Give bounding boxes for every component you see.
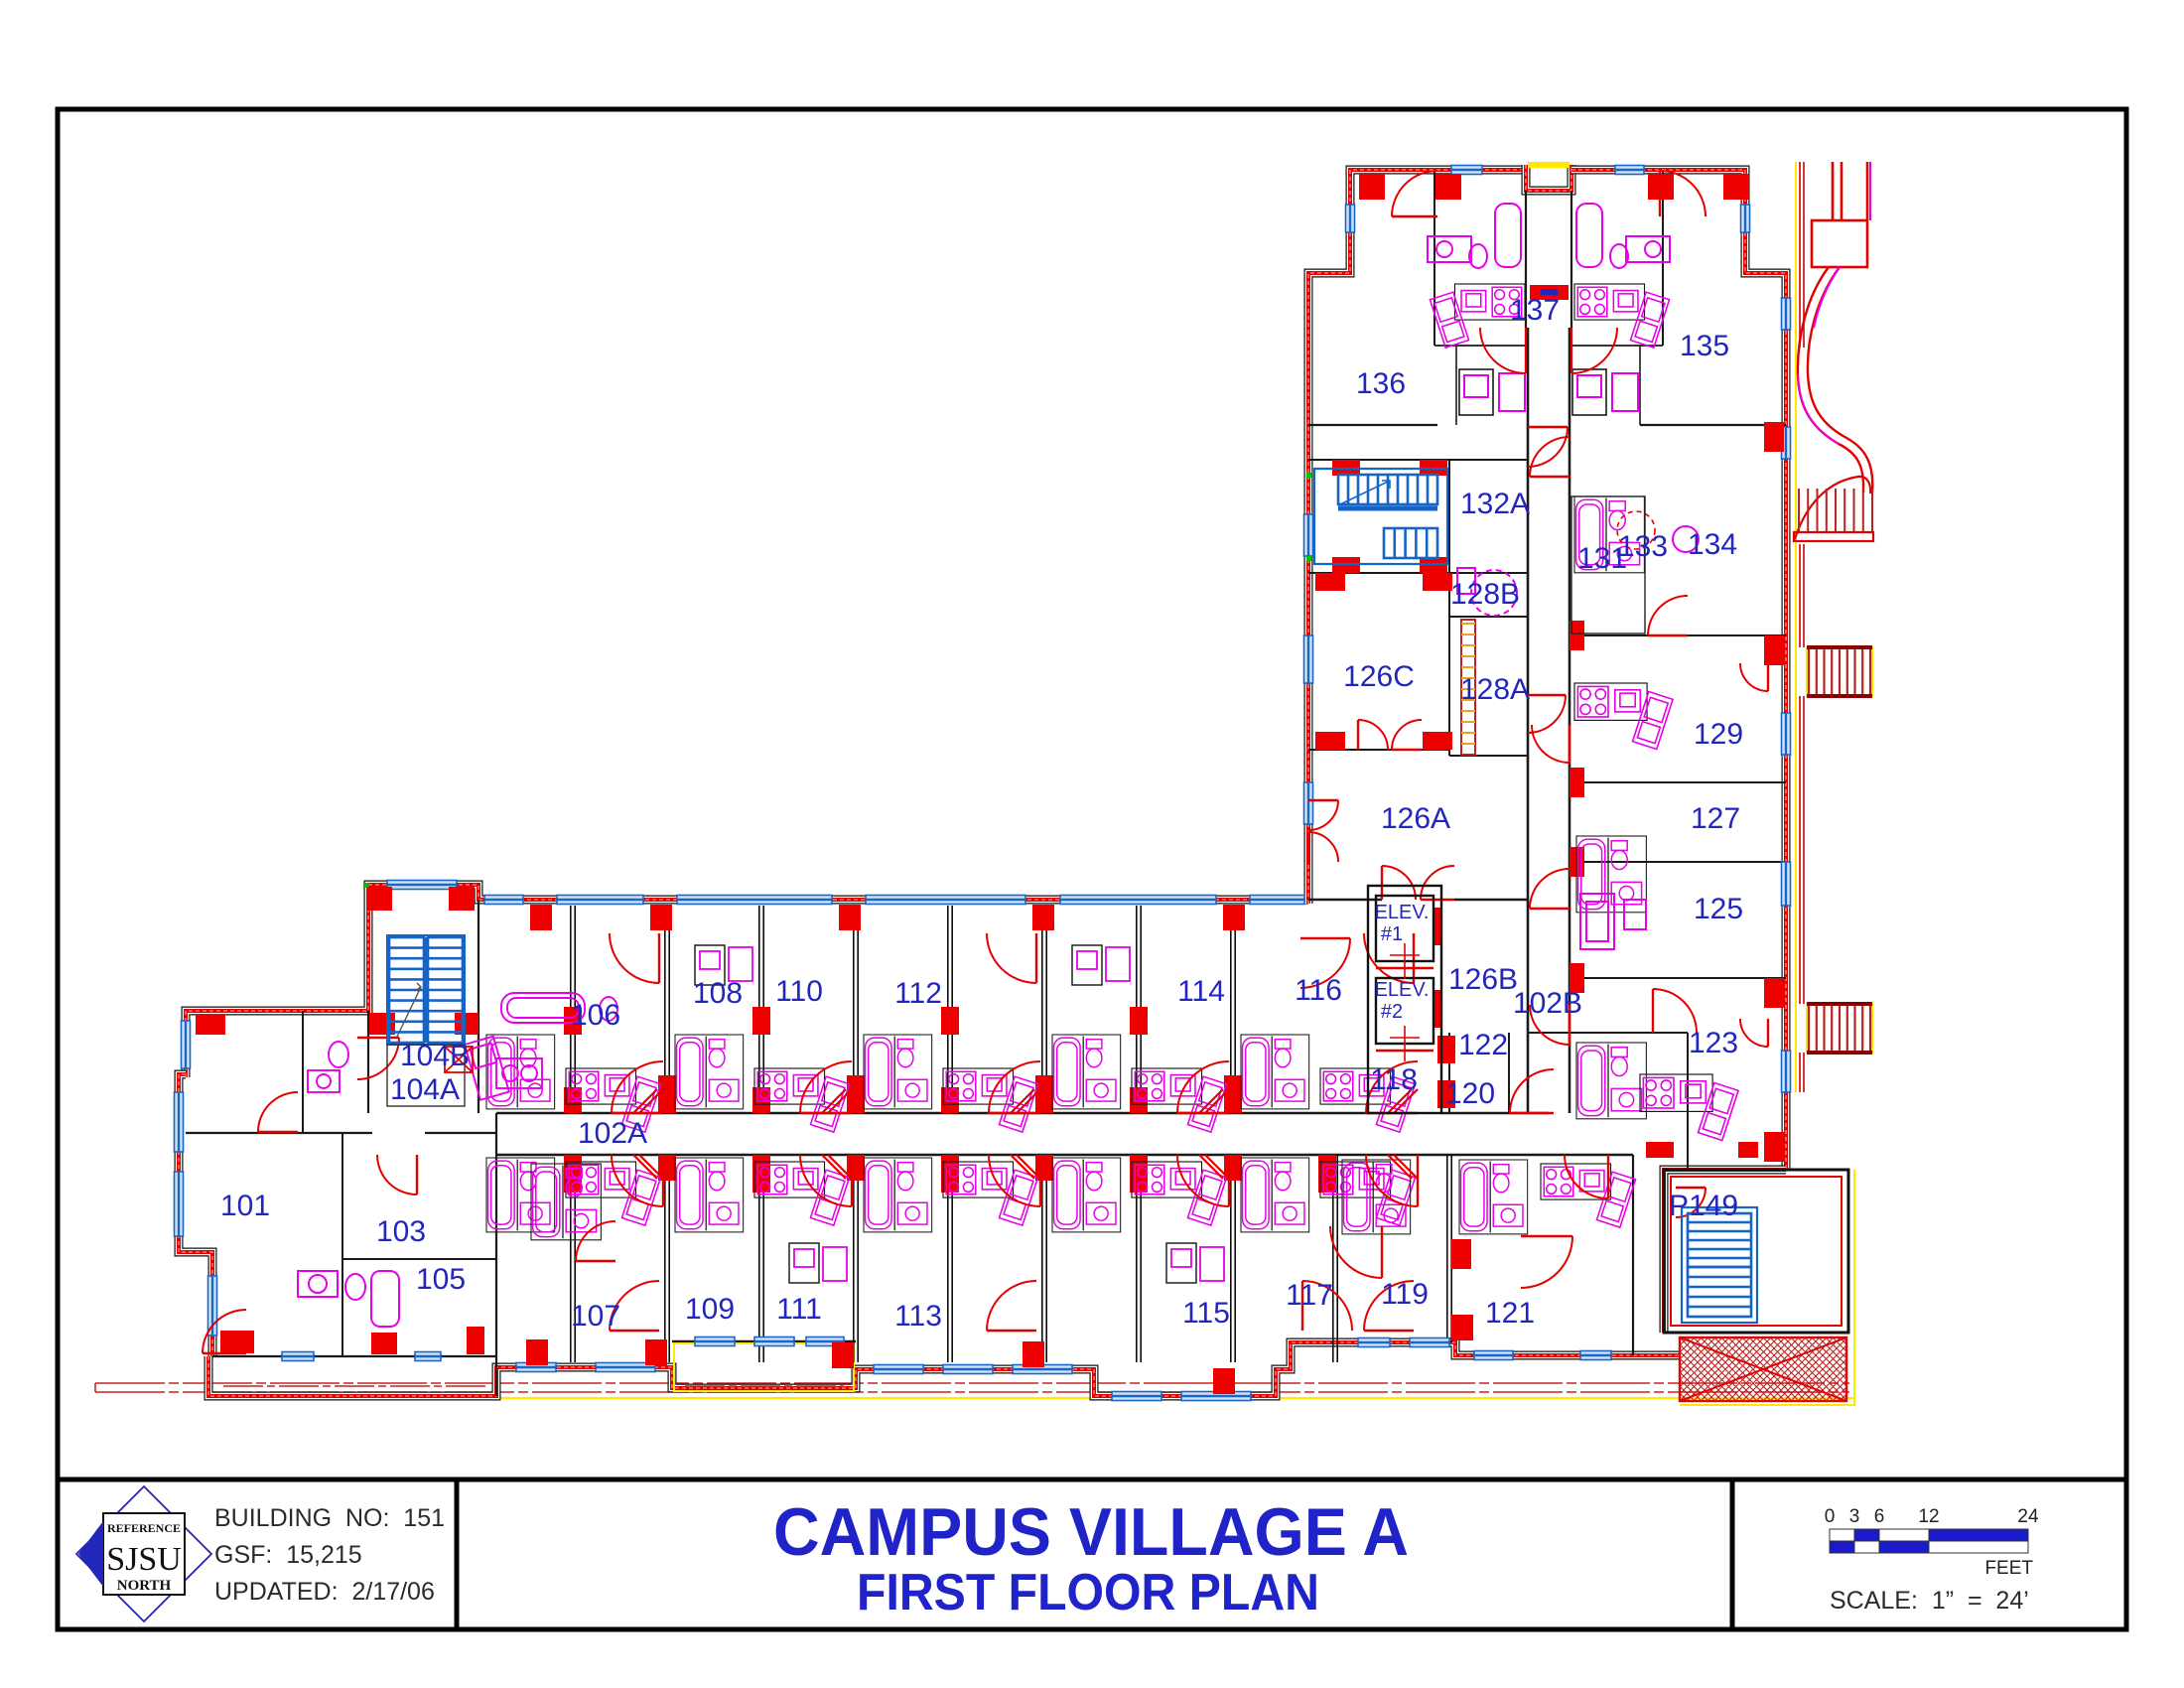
svg-text:24: 24	[2017, 1506, 2039, 1527]
svg-text:#1: #1	[1381, 923, 1403, 945]
svg-text:115: 115	[1182, 1297, 1230, 1330]
svg-text:ELEV.: ELEV.	[1375, 979, 1430, 1001]
svg-text:ELEV.: ELEV.	[1375, 902, 1430, 923]
svg-text:CAMPUS VILLAGE A: CAMPUS VILLAGE A	[773, 1494, 1409, 1570]
svg-text:137: 137	[1510, 294, 1560, 327]
svg-text:126C: 126C	[1343, 660, 1415, 693]
svg-text:109: 109	[685, 1293, 735, 1326]
svg-text:108: 108	[693, 977, 743, 1010]
svg-text:123: 123	[1689, 1027, 1738, 1059]
svg-text:106: 106	[571, 999, 620, 1032]
svg-text:126A: 126A	[1381, 802, 1450, 835]
svg-text:GSF: 15,215: GSF: 15,215	[214, 1541, 362, 1569]
svg-text:122: 122	[1458, 1029, 1508, 1061]
svg-text:111: 111	[776, 1293, 822, 1326]
svg-text:104B: 104B	[400, 1040, 470, 1072]
svg-text:FEET: FEET	[1984, 1558, 2033, 1579]
svg-text:NORTH: NORTH	[117, 1578, 172, 1594]
svg-text:6: 6	[1874, 1506, 1885, 1527]
svg-text:121: 121	[1485, 1297, 1535, 1330]
svg-text:107: 107	[571, 1300, 620, 1333]
svg-text:132A: 132A	[1460, 488, 1530, 520]
svg-text:104A: 104A	[390, 1073, 460, 1106]
svg-text:117: 117	[1286, 1279, 1333, 1312]
svg-text:119: 119	[1381, 1278, 1429, 1311]
svg-text:114: 114	[1177, 975, 1225, 1008]
svg-text:BUILDING NO: 151: BUILDING NO: 151	[214, 1504, 445, 1532]
svg-text:118: 118	[1370, 1063, 1418, 1096]
svg-text:125: 125	[1694, 893, 1743, 925]
svg-text:102A: 102A	[578, 1117, 647, 1150]
svg-text:101: 101	[220, 1190, 270, 1222]
svg-text:128A: 128A	[1460, 673, 1530, 706]
svg-text:SCALE: 1” = 24’: SCALE: 1” = 24’	[1830, 1587, 2029, 1615]
svg-text:105: 105	[416, 1263, 466, 1296]
svg-text:110: 110	[775, 975, 823, 1008]
svg-text:133: 133	[1618, 530, 1668, 563]
svg-text:129: 129	[1694, 718, 1743, 751]
svg-text:103: 103	[376, 1215, 426, 1248]
svg-text:116: 116	[1295, 974, 1342, 1007]
svg-text:128B: 128B	[1450, 578, 1520, 611]
svg-text:127: 127	[1691, 802, 1740, 835]
svg-text:136: 136	[1356, 367, 1406, 400]
svg-text:0: 0	[1825, 1506, 1836, 1527]
svg-text:126B: 126B	[1448, 963, 1518, 996]
svg-text:#2: #2	[1381, 1001, 1403, 1023]
svg-text:112: 112	[894, 977, 942, 1010]
svg-text:P149: P149	[1669, 1190, 1738, 1222]
svg-text:120: 120	[1445, 1077, 1495, 1110]
svg-text:134: 134	[1688, 528, 1737, 561]
svg-text:SJSU: SJSU	[106, 1541, 182, 1578]
svg-text:3: 3	[1849, 1506, 1860, 1527]
svg-text:135: 135	[1680, 330, 1729, 362]
svg-text:113: 113	[894, 1300, 942, 1333]
svg-text:REFERENCE: REFERENCE	[107, 1521, 181, 1535]
svg-text:UPDATED: 2/17/06: UPDATED: 2/17/06	[214, 1578, 435, 1606]
svg-text:12: 12	[1918, 1506, 1939, 1527]
svg-text:102B: 102B	[1513, 987, 1582, 1020]
svg-text:FIRST FLOOR PLAN: FIRST FLOOR PLAN	[857, 1564, 1319, 1621]
